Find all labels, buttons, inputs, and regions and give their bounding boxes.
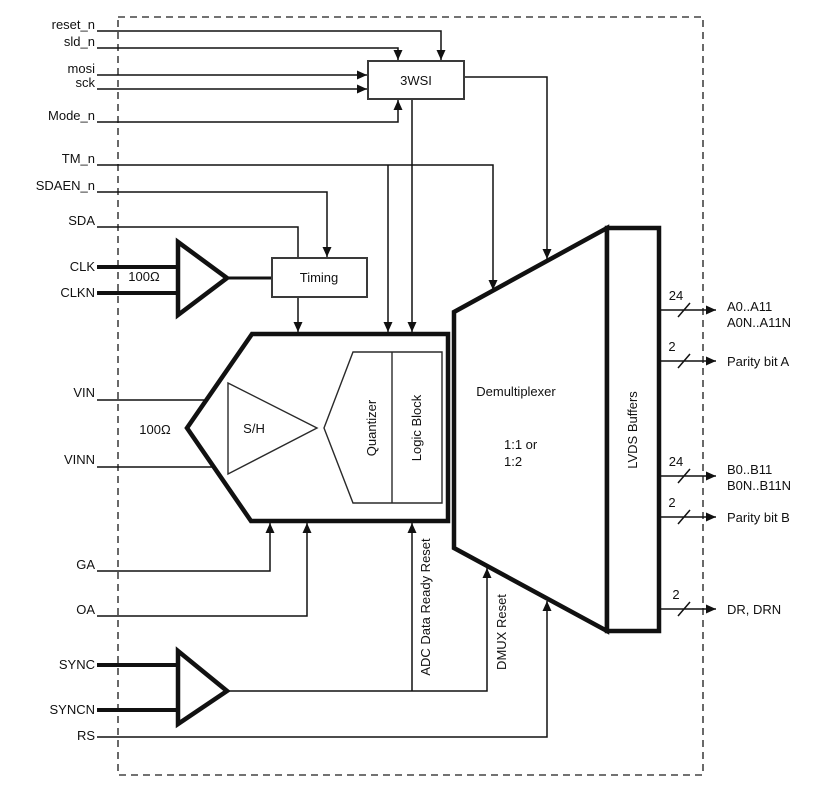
wire-sync-buffer-to-dmux-reset xyxy=(226,568,487,691)
input-label-rs: RS xyxy=(77,728,95,743)
clk-buffer-triangle xyxy=(178,242,227,315)
input-label-clkn: CLKN xyxy=(60,285,95,300)
input-label-vinn: VINN xyxy=(64,452,95,467)
wire-ga xyxy=(97,523,270,571)
sync-buffer-triangle xyxy=(178,651,227,724)
bus-parity-a-width-label: 2 xyxy=(668,339,675,354)
adc-data-ready-reset-label: ADC Data Ready Reset xyxy=(418,538,433,676)
wire-reset-n xyxy=(97,31,441,60)
output-label-b-bus-line2: B0N..B11N xyxy=(727,478,791,493)
output-label-a-bus-line2: A0N..A11N xyxy=(727,315,791,330)
demux-mode-label-line2: 1:2 xyxy=(504,454,522,469)
input-label-sld-n: sld_n xyxy=(64,34,95,49)
wire-sld-n xyxy=(97,48,398,60)
input-label-mode-n: Mode_n xyxy=(48,108,95,123)
wire-sdaen-n xyxy=(97,192,327,257)
3wsi-label: 3WSI xyxy=(400,73,432,88)
input-label-vin: VIN xyxy=(73,385,95,400)
bus-a-width-label: 24 xyxy=(669,288,683,303)
output-label-parity-a: Parity bit A xyxy=(727,354,789,369)
dmux-reset-label: DMUX Reset xyxy=(494,594,509,670)
output-label-parity-b: Parity bit B xyxy=(727,510,790,525)
vin-termination-label: 100Ω xyxy=(139,422,171,437)
demux-mode-label-line1: 1:1 or xyxy=(504,437,538,452)
wire-mode-n xyxy=(97,100,398,122)
input-label-ga: GA xyxy=(76,557,95,572)
input-label-oa: OA xyxy=(76,602,95,617)
demultiplexer-label: Demultiplexer xyxy=(476,384,556,399)
wire-rs xyxy=(97,601,547,737)
input-label-mosi: mosi xyxy=(68,61,96,76)
input-label-tm-n: TM_n xyxy=(62,151,95,166)
quantizer-label: Quantizer xyxy=(364,399,379,456)
wire-oa xyxy=(97,523,307,616)
bus-b-width-label: 24 xyxy=(669,454,683,469)
input-label-sda: SDA xyxy=(68,213,95,228)
logic-block-label: Logic Block xyxy=(409,394,424,461)
adc-block-diagram: reset_n sld_n mosi sck Mode_n TM_n SDAEN… xyxy=(0,0,834,794)
input-label-syncn: SYNCN xyxy=(49,702,95,717)
input-label-sdaen-n: SDAEN_n xyxy=(36,178,95,193)
output-label-b-bus-line1: B0..B11 xyxy=(727,462,772,477)
bus-parity-b-width-label: 2 xyxy=(668,495,675,510)
input-label-sck: sck xyxy=(76,75,96,90)
wire-3wsi-to-demux xyxy=(464,77,547,259)
diagram-canvas: reset_n sld_n mosi sck Mode_n TM_n SDAEN… xyxy=(0,0,834,794)
input-label-clk: CLK xyxy=(70,259,96,274)
output-label-dr-drn: DR, DRN xyxy=(727,602,781,617)
demultiplexer-shape xyxy=(454,228,607,631)
lvds-buffers-label: LVDS Buffers xyxy=(625,391,640,469)
input-label-reset-n: reset_n xyxy=(52,17,95,32)
clk-termination-label: 100Ω xyxy=(128,269,160,284)
sample-hold-label: S/H xyxy=(243,421,265,436)
timing-label: Timing xyxy=(300,270,339,285)
bus-dr-width-label: 2 xyxy=(672,587,679,602)
input-label-sync: SYNC xyxy=(59,657,95,672)
output-label-a-bus-line1: A0..A11 xyxy=(727,299,772,314)
